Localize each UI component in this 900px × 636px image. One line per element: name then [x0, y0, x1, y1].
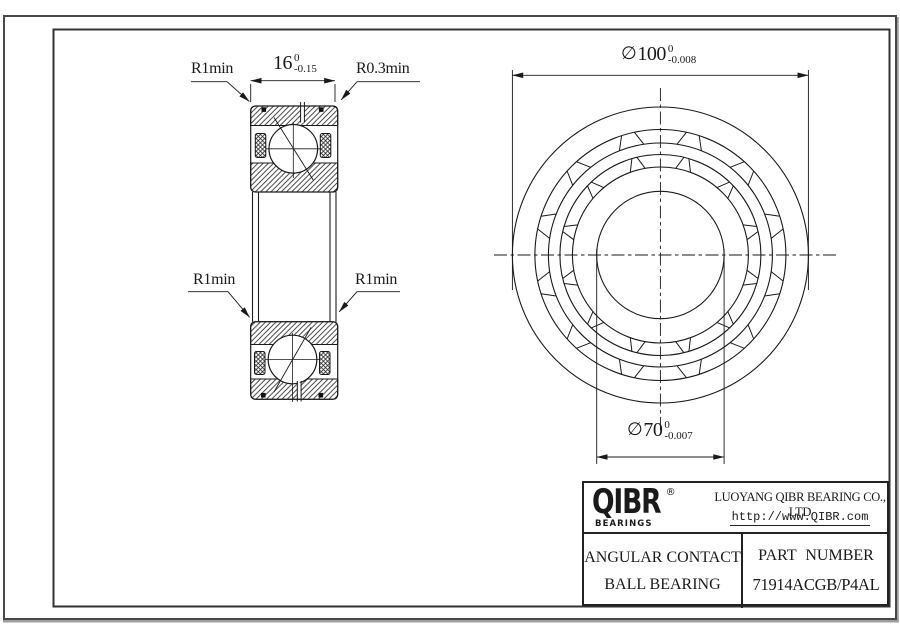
centerlines [494, 88, 838, 430]
section-bottom [251, 322, 338, 402]
width-dimension: 16 0 -0.15 [273, 52, 317, 74]
product-name-cell: ANGULAR CONTACT BALL BEARING [584, 534, 741, 608]
diameter-symbol: ∅ [627, 419, 642, 441]
qibr-logo: QIBR ® BEARINGS [592, 487, 712, 529]
width-tolerance: 0 -0.15 [294, 53, 317, 74]
part-number-cell: PART NUMBER 71914ACGB/P4AL [743, 534, 889, 608]
fillet-note-mid-left: R1min [193, 271, 235, 289]
bore-lines [253, 192, 337, 322]
drawing-sheet: R1min R0.3min 16 0 -0.15 R1min R1min ∅ 1… [0, 0, 900, 636]
company-website: http://www.QIBR.com [712, 510, 888, 524]
width-value: 16 [273, 52, 292, 74]
width-dimension-lines [251, 81, 335, 102]
front-view-linework [494, 70, 838, 464]
bore-diameter-tolerance: 0 -0.007 [664, 420, 692, 441]
product-name-line2: BALL BEARING [604, 576, 720, 594]
outer-diameter-dimension: ∅ 100 0 -0.008 [621, 43, 696, 65]
diameter-symbol: ∅ [621, 43, 636, 65]
outer-diameter-tolerance: 0 -0.008 [668, 44, 696, 65]
part-number-value: 71914ACGB/P4AL [753, 575, 880, 595]
registered-trademark-icon: ® [666, 488, 676, 498]
product-name-line1: ANGULAR CONTACT [584, 549, 741, 567]
outer-diameter-value: 100 [637, 43, 666, 65]
part-number-label: PART NUMBER [758, 547, 874, 565]
section-view-linework [188, 81, 420, 402]
title-block: QIBR ® BEARINGS LUOYANG QIBR BEARING CO.… [582, 481, 889, 606]
fillet-note-mid-right: R1min [355, 271, 397, 289]
fillet-note-top-left: R1min [191, 60, 233, 78]
bore-diameter-value: 70 [643, 419, 662, 441]
section-top [251, 102, 338, 192]
brand-wordmark: QIBR [592, 487, 660, 517]
fillet-note-top-right: R0.3min [356, 60, 409, 78]
bore-diameter-dimension: ∅ 70 0 -0.007 [627, 419, 693, 441]
